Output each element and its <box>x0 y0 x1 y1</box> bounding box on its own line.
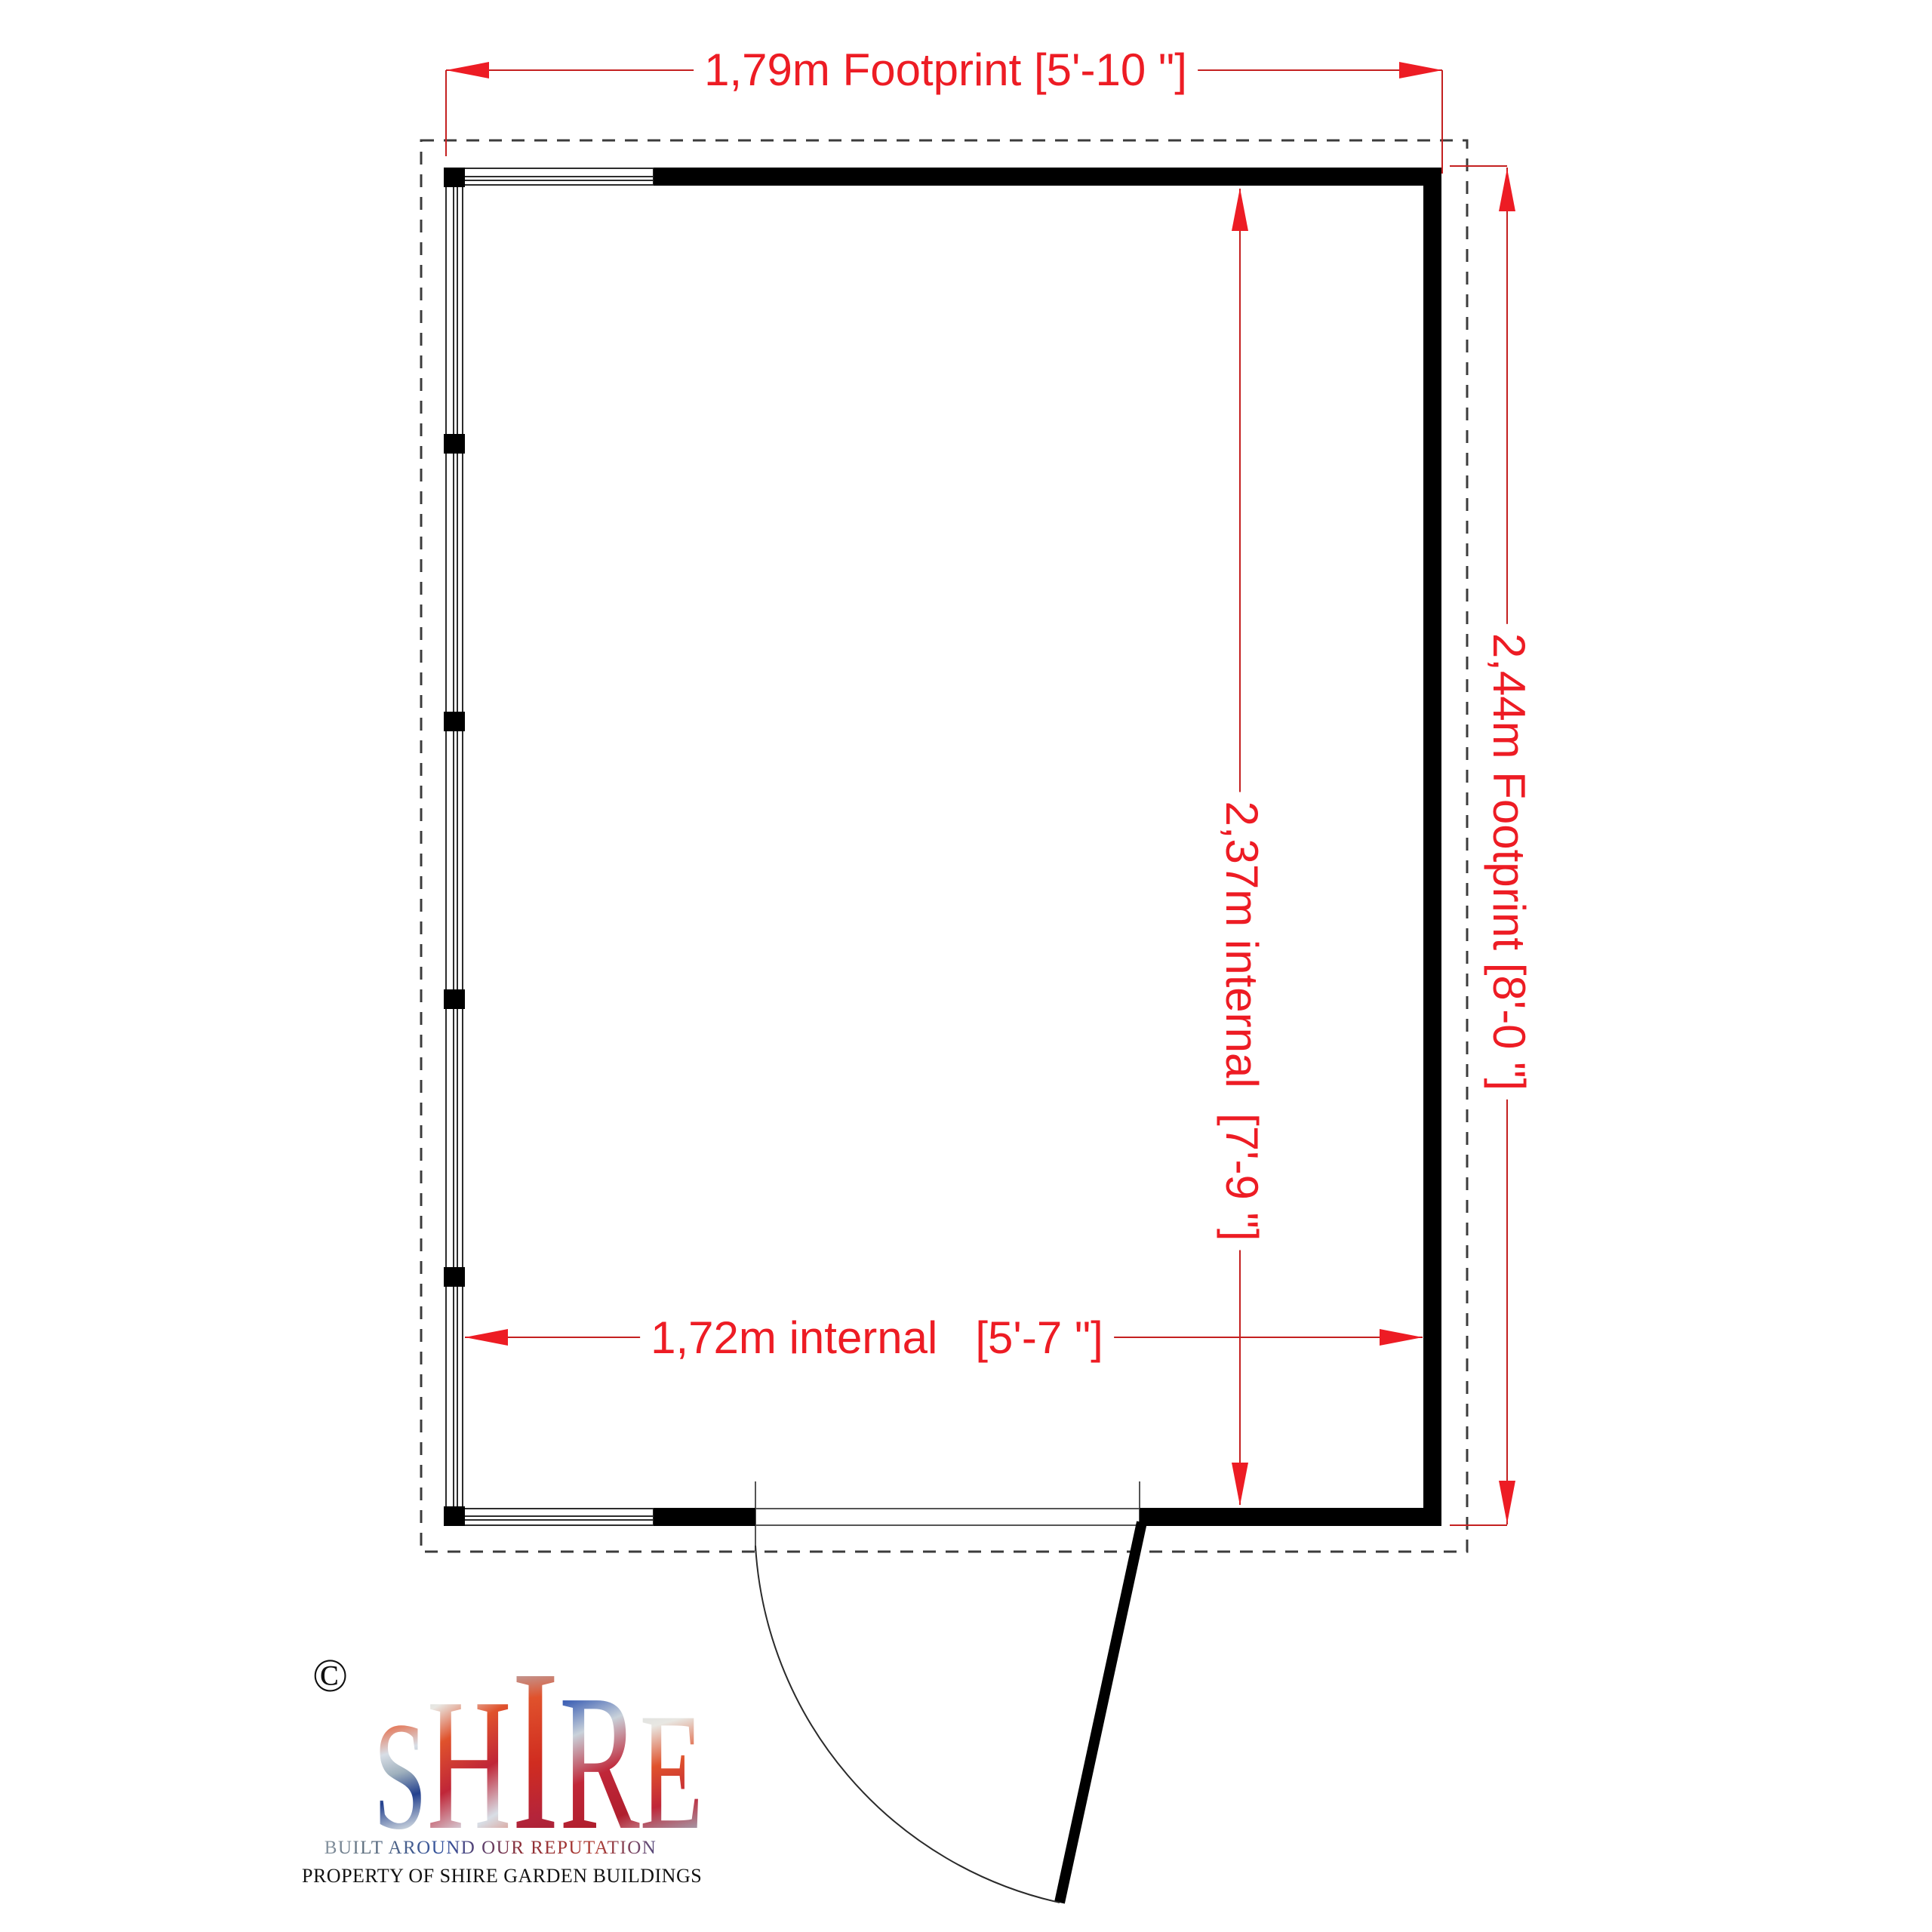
property-line: PROPERTY OF SHIRE GARDEN BUILDINGS <box>302 1865 679 1887</box>
arrow-right-icon <box>1399 62 1442 78</box>
arrow-up-icon <box>1232 188 1248 231</box>
arrow-right-icon <box>1380 1329 1423 1346</box>
wall-right <box>1423 168 1441 1526</box>
door-threshold <box>755 1509 1140 1525</box>
arrow-down-icon <box>1232 1463 1248 1506</box>
arrow-left-icon <box>446 62 489 78</box>
arrow-up-icon <box>1499 168 1515 211</box>
dimension-label-footprint-width: 1,79m Footprint [5'-10 "] <box>694 45 1198 95</box>
door-leaf <box>1060 1522 1142 1903</box>
dimension-arrows <box>446 62 1515 1524</box>
door-swing-arc <box>755 1546 1060 1903</box>
mullion-post <box>444 989 465 1009</box>
wall-bottom-right-segment <box>1140 1508 1423 1526</box>
mullion-post <box>444 712 465 731</box>
plan-drawing <box>0 0 1932 1932</box>
corner-post-top-left <box>444 168 465 187</box>
brand-wordmark: SHIRE <box>374 1629 608 1872</box>
copyright-symbol: © <box>312 1650 348 1703</box>
arrow-down-icon <box>1499 1481 1515 1524</box>
dimension-lines <box>446 70 1507 1525</box>
corner-post-bottom-left <box>444 1506 465 1526</box>
wall-top <box>654 168 1441 186</box>
wall-bottom-left-segment <box>654 1508 755 1526</box>
brand-tagline: BUILT AROUND OUR REPUTATION <box>302 1838 679 1859</box>
dimension-label-footprint-height: 2,44m Footprint [8'-0 "] <box>1484 624 1534 1100</box>
dimension-label-internal-width: 1,72m internal [5'-7 "] <box>640 1313 1114 1363</box>
dimension-label-internal-height: 2,37m internal [7'-9 "] <box>1217 792 1266 1250</box>
shire-logo: © SHIRE BUILT AROUND OUR REPUTATION PROP… <box>302 1645 679 1917</box>
mullion-post <box>444 434 465 454</box>
window-left-wall <box>446 168 463 1526</box>
window-top-wall <box>463 168 654 186</box>
floor-plan-canvas: 1,79m Footprint [5'-10 "] 2,44m Footprin… <box>0 0 1932 1932</box>
window-bottom-wall <box>463 1508 654 1526</box>
arrow-left-icon <box>465 1329 508 1346</box>
mullion-post <box>444 1267 465 1287</box>
brand-letter-s: S <box>374 1690 427 1862</box>
